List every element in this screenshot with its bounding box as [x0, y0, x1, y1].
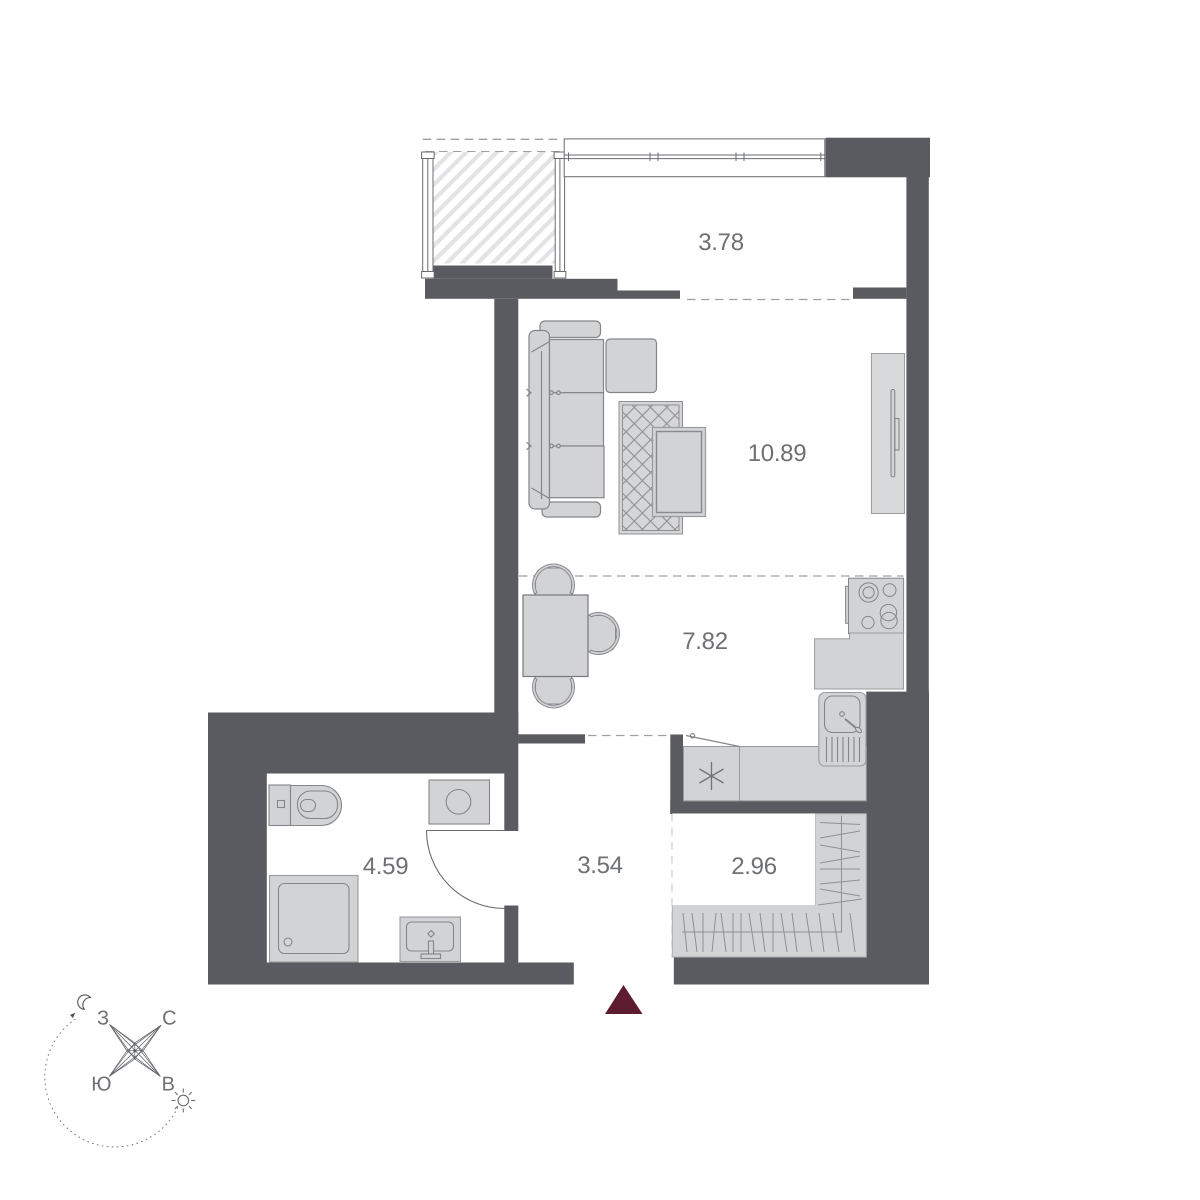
svg-text:Ю: Ю — [91, 1074, 111, 1096]
svg-text:2.96: 2.96 — [731, 853, 777, 880]
svg-text:3.54: 3.54 — [577, 852, 623, 879]
svg-text:7.82: 7.82 — [682, 628, 728, 655]
svg-text:3.78: 3.78 — [698, 229, 744, 256]
svg-text:С: С — [162, 1008, 176, 1030]
svg-text:В: В — [162, 1074, 175, 1096]
svg-text:З: З — [97, 1008, 109, 1030]
svg-text:10.89: 10.89 — [748, 440, 807, 467]
svg-text:4.59: 4.59 — [363, 853, 409, 880]
